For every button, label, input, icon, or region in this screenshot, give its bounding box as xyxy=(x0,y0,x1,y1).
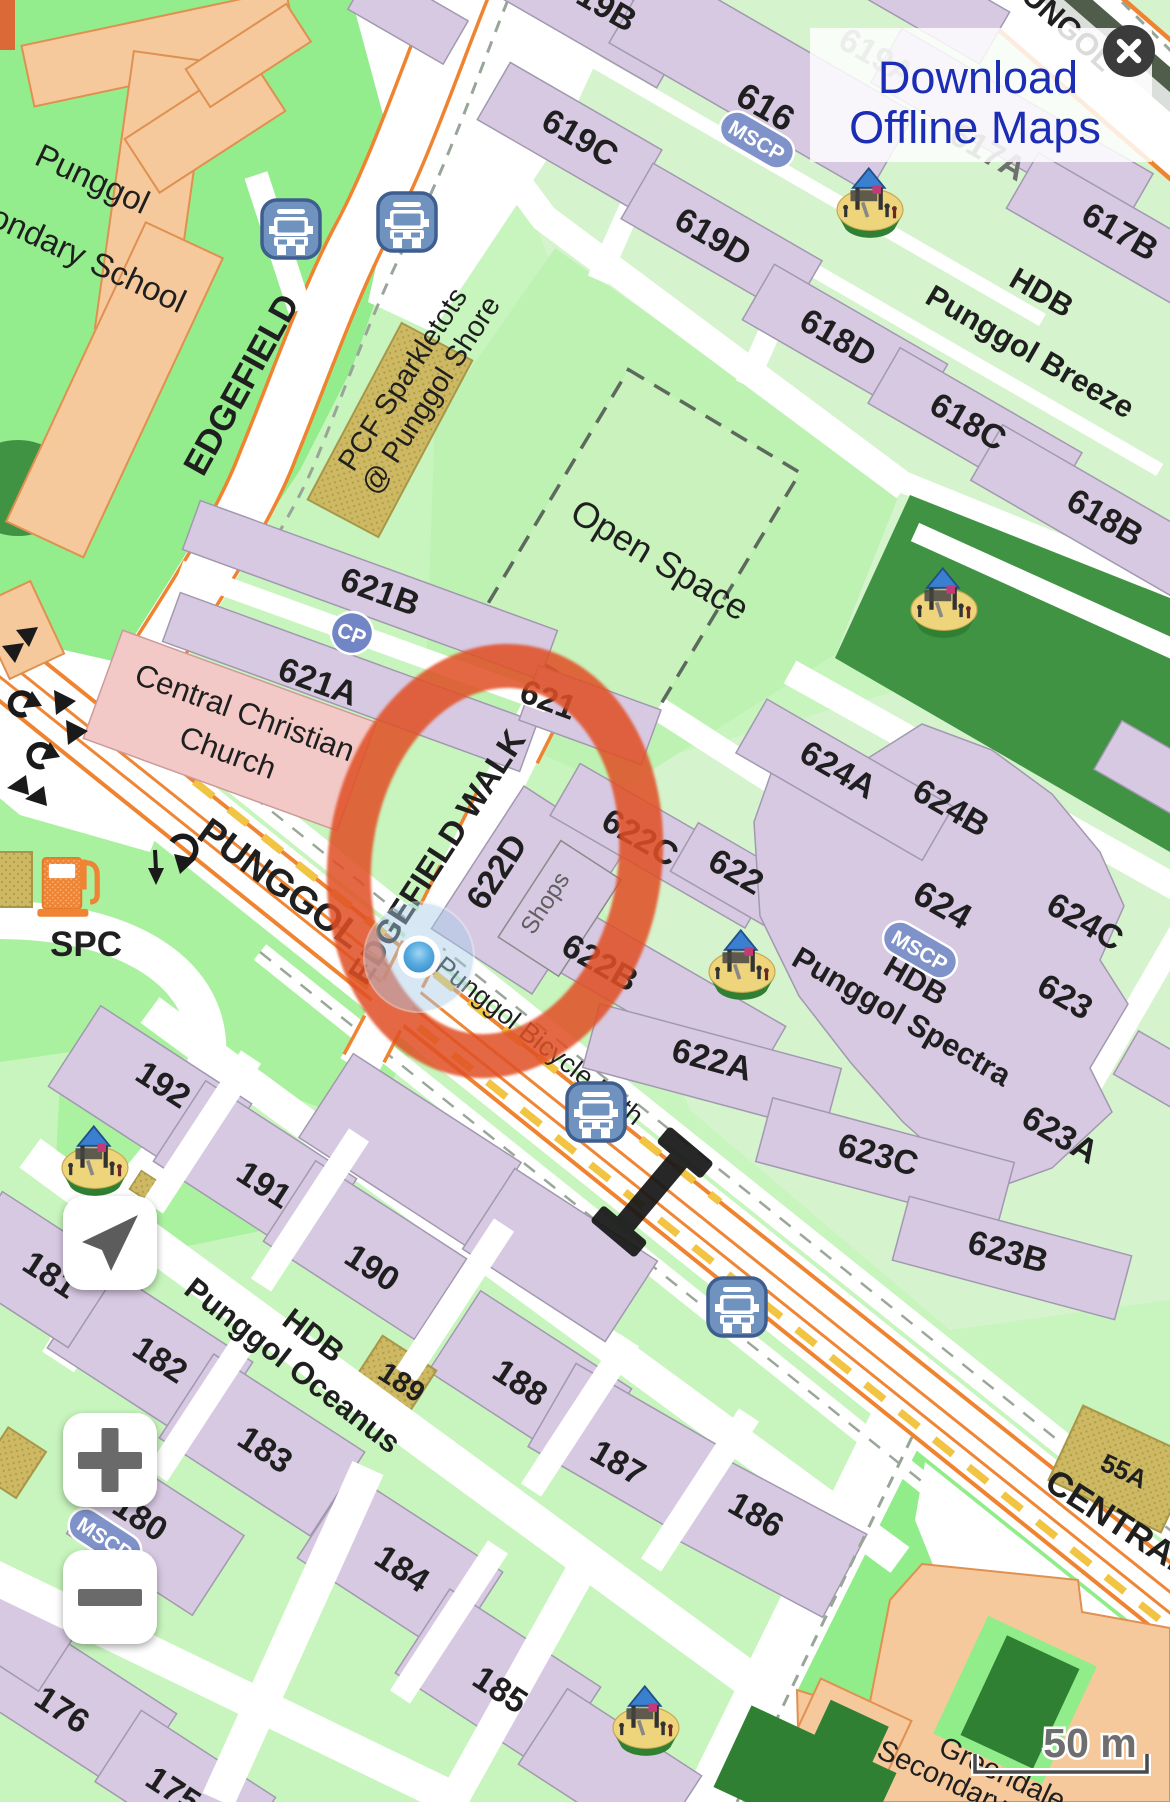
svg-text:SPC: SPC xyxy=(50,925,122,964)
svg-text:50 m: 50 m xyxy=(1043,1720,1136,1766)
svg-text:Download: Download xyxy=(878,52,1078,103)
svg-text:Offline Maps: Offline Maps xyxy=(849,102,1101,153)
